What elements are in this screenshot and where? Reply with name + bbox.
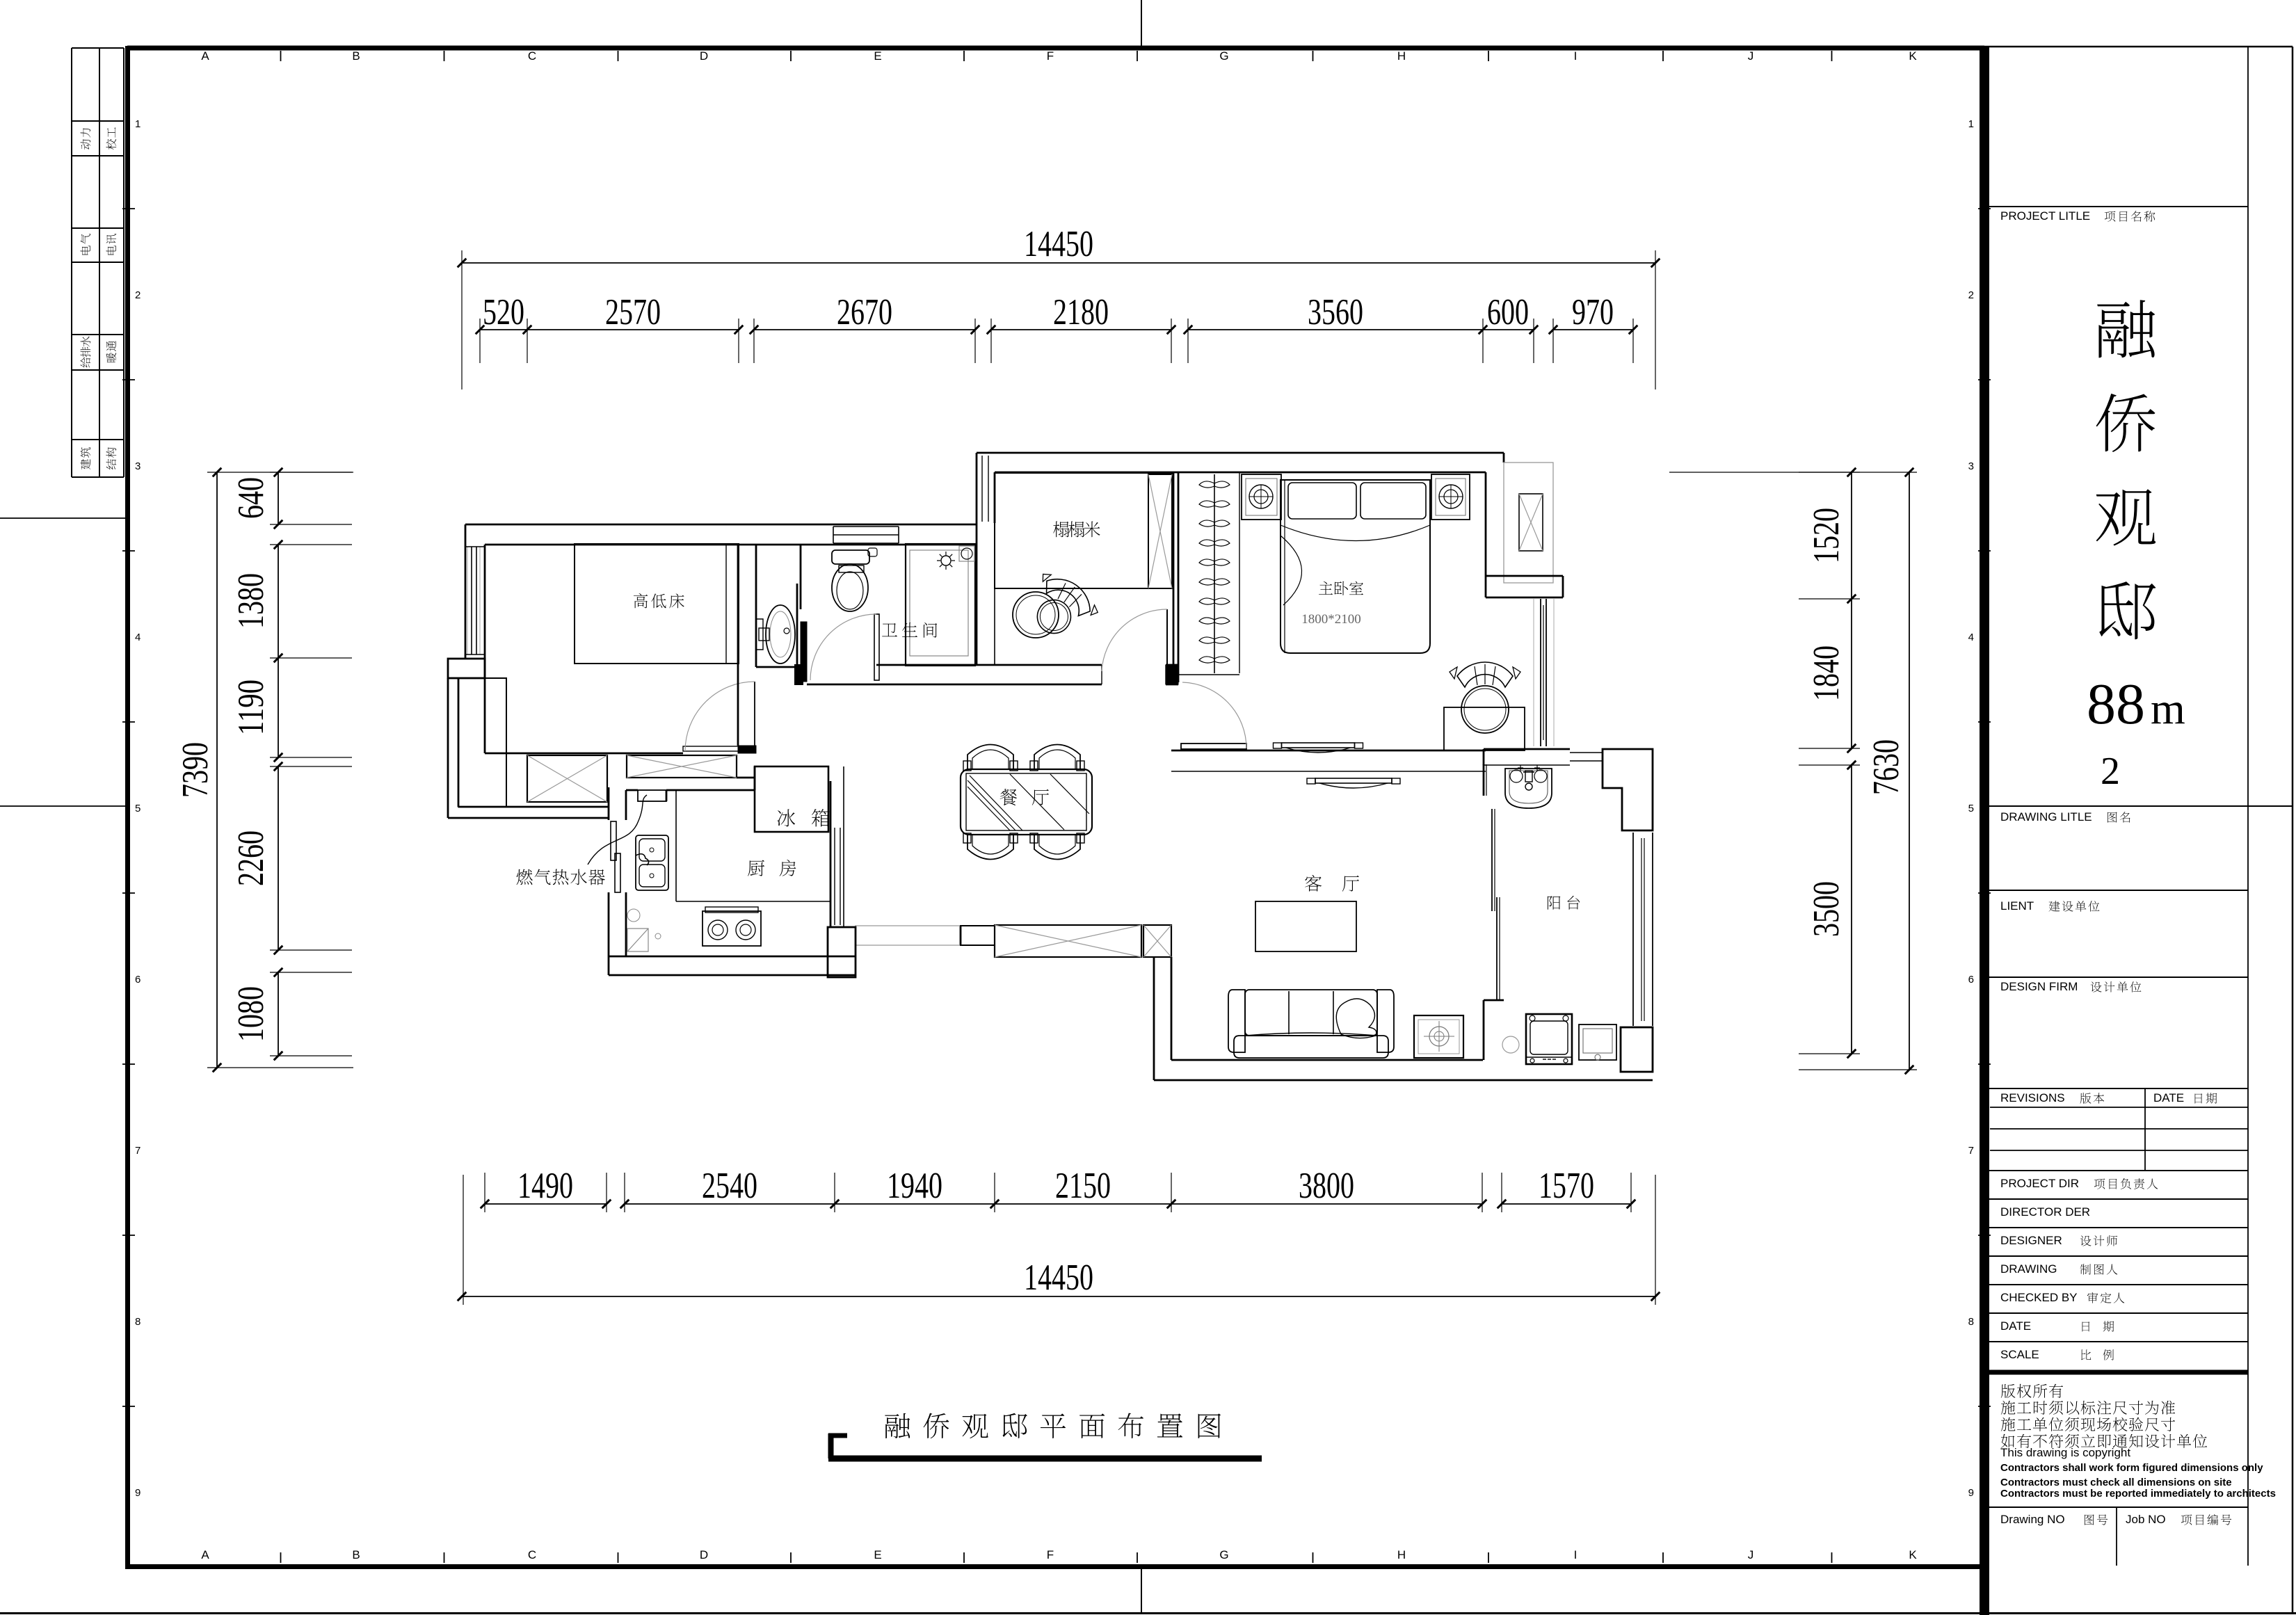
- svg-text:E: E: [874, 49, 881, 63]
- svg-text:3560: 3560: [1308, 292, 1363, 332]
- svg-text:2: 2: [2101, 750, 2120, 793]
- svg-text:Contractors shall work form fi: Contractors shall work form figured dime…: [2000, 1462, 2263, 1474]
- svg-text:Contractors must check all dim: Contractors must check all dimensions on…: [2000, 1477, 2232, 1488]
- svg-text:F: F: [1047, 49, 1054, 63]
- svg-text:2670: 2670: [837, 292, 892, 332]
- svg-text:520: 520: [483, 292, 524, 332]
- svg-text:DIRECTOR DER: DIRECTOR DER: [2000, 1205, 2090, 1219]
- svg-text:DESIGN FIRM: DESIGN FIRM: [2000, 980, 2078, 993]
- svg-text:1: 1: [135, 118, 141, 130]
- svg-text:B: B: [352, 1548, 360, 1561]
- svg-text:7: 7: [135, 1145, 141, 1157]
- svg-text:A: A: [201, 1548, 209, 1561]
- svg-text:J: J: [1748, 1548, 1754, 1561]
- svg-text:970: 970: [1572, 292, 1614, 332]
- svg-text:2150: 2150: [1055, 1166, 1111, 1206]
- svg-text:F: F: [1047, 1548, 1054, 1561]
- svg-text:LIENT: LIENT: [2000, 899, 2034, 913]
- svg-text:DATE: DATE: [2000, 1319, 2031, 1333]
- svg-text:2: 2: [135, 289, 141, 301]
- svg-text:A: A: [201, 49, 209, 63]
- svg-text:C: C: [528, 49, 536, 63]
- svg-text:m: m: [2151, 684, 2185, 733]
- svg-text:1490: 1490: [517, 1166, 573, 1206]
- svg-text:Contractors must be reported i: Contractors must be reported immediately…: [2000, 1488, 2276, 1500]
- svg-text:DATE: DATE: [2153, 1091, 2184, 1104]
- svg-text:E: E: [874, 1548, 881, 1561]
- svg-text:2570: 2570: [605, 292, 661, 332]
- svg-text:C: C: [528, 1548, 536, 1561]
- svg-text:REVISIONS: REVISIONS: [2000, 1091, 2065, 1104]
- svg-text:14450: 14450: [1024, 1258, 1093, 1298]
- svg-text:1800*2100: 1800*2100: [1301, 612, 1361, 627]
- svg-text:5: 5: [1968, 803, 1974, 814]
- svg-text:5: 5: [135, 803, 141, 814]
- svg-text:CHECKED BY: CHECKED BY: [2000, 1291, 2078, 1304]
- svg-text:K: K: [1909, 1548, 1917, 1561]
- svg-text:2: 2: [1968, 289, 1974, 301]
- svg-text:1940: 1940: [887, 1166, 942, 1206]
- svg-text:SCALE: SCALE: [2000, 1348, 2039, 1361]
- svg-text:8: 8: [1968, 1316, 1974, 1328]
- svg-text:3: 3: [135, 460, 141, 472]
- svg-text:4: 4: [1968, 632, 1974, 643]
- svg-text:Job NO: Job NO: [2126, 1513, 2166, 1526]
- svg-text:1840: 1840: [1806, 645, 1847, 701]
- svg-text:J: J: [1748, 49, 1754, 63]
- svg-text:3: 3: [1968, 460, 1974, 472]
- svg-text:6: 6: [1968, 974, 1974, 986]
- svg-text:DRAWING LITLE: DRAWING LITLE: [2000, 810, 2092, 823]
- svg-text:3500: 3500: [1806, 881, 1847, 937]
- svg-text:G: G: [1219, 1548, 1228, 1561]
- svg-text:1: 1: [1968, 118, 1974, 130]
- svg-text:1520: 1520: [1806, 508, 1847, 563]
- svg-text:88: 88: [2087, 672, 2145, 737]
- svg-text:K: K: [1909, 49, 1917, 63]
- svg-text:PROJECT DIR: PROJECT DIR: [2000, 1177, 2079, 1190]
- svg-text:2260: 2260: [231, 830, 271, 886]
- svg-text:9: 9: [1968, 1487, 1974, 1499]
- svg-text:4: 4: [135, 632, 141, 643]
- svg-text:7630: 7630: [1866, 739, 1906, 795]
- svg-text:3800: 3800: [1299, 1166, 1354, 1206]
- svg-text:H: H: [1397, 49, 1406, 63]
- svg-text:1080: 1080: [231, 986, 271, 1042]
- svg-text:PROJECT LITLE: PROJECT LITLE: [2000, 209, 2090, 223]
- svg-text:600: 600: [1487, 292, 1529, 332]
- svg-text:1570: 1570: [1539, 1166, 1594, 1206]
- svg-text:8: 8: [135, 1316, 141, 1328]
- svg-text:B: B: [352, 49, 360, 63]
- svg-text:I: I: [1574, 1548, 1578, 1561]
- svg-text:7: 7: [1968, 1145, 1974, 1157]
- svg-text:9: 9: [135, 1487, 141, 1499]
- svg-text:H: H: [1397, 1548, 1406, 1561]
- svg-text:14450: 14450: [1024, 224, 1093, 264]
- svg-text:1380: 1380: [231, 573, 271, 629]
- svg-text:I: I: [1574, 49, 1578, 63]
- svg-text:D: D: [700, 49, 708, 63]
- svg-text:DRAWING: DRAWING: [2000, 1262, 2057, 1276]
- svg-text:640: 640: [231, 477, 271, 519]
- svg-text:G: G: [1219, 49, 1228, 63]
- svg-text:DESIGNER: DESIGNER: [2000, 1234, 2062, 1247]
- svg-text:2540: 2540: [702, 1166, 757, 1206]
- svg-text:D: D: [700, 1548, 708, 1561]
- svg-text:2180: 2180: [1053, 292, 1109, 332]
- svg-text:7390: 7390: [175, 742, 216, 798]
- svg-text:1190: 1190: [231, 680, 271, 735]
- svg-text:Drawing NO: Drawing NO: [2000, 1513, 2065, 1526]
- svg-text:This drawing is copyright: This drawing is copyright: [2000, 1446, 2130, 1459]
- svg-text:6: 6: [135, 974, 141, 986]
